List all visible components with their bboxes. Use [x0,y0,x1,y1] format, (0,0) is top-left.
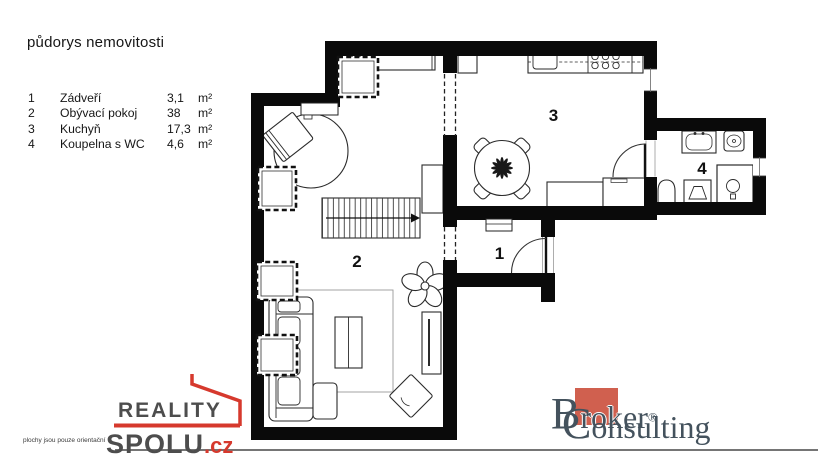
kitchen-island [547,182,603,208]
disclaimer-text: plochy jsou pouze orientační [23,437,105,444]
plant [400,262,451,310]
reality-logo-line1: REALITY [118,400,222,421]
tv-bench [422,312,441,374]
floorplan-page: půdorys nemovitosti 1 Zádveří 3,1 m² 2 O… [0,0,832,468]
consulting-c: C [562,399,591,448]
room-label-4: 4 [697,159,707,178]
door-swing-arc [512,239,547,274]
washing-machine [684,180,711,203]
kitchen-sink-unit [603,178,645,208]
broker-logo-line2: Consulting [562,402,710,446]
toilet [658,180,675,203]
dining-set [472,136,531,200]
pouf [389,374,433,418]
walls [251,41,766,440]
room-label-1: 1 [495,244,504,263]
coffee-table [335,317,362,368]
room-label-3: 3 [549,106,558,125]
dashed-opening [445,227,456,260]
broker-consulting-logo: Broker® Consulting [540,382,760,462]
window [753,157,766,177]
hall-radiator [486,219,512,231]
shower [717,165,753,203]
spolu-tld: .cz [204,433,233,458]
reality-logo-line2: SPOLU.cz [106,431,233,459]
washbasin [682,131,716,153]
stairs-cabinet [422,165,443,213]
entrance-door [512,237,554,273]
window [644,68,657,92]
room-label-2: 2 [352,252,361,271]
door-swing-arc [613,144,646,177]
spolu-text: SPOLU [106,429,204,459]
consulting-rest: onsulting [591,409,710,445]
boiler [724,131,744,151]
dashed-opening [445,74,456,136]
bathroom-door [613,141,655,178]
staircase [322,198,420,238]
shower-head-icon [727,180,740,193]
